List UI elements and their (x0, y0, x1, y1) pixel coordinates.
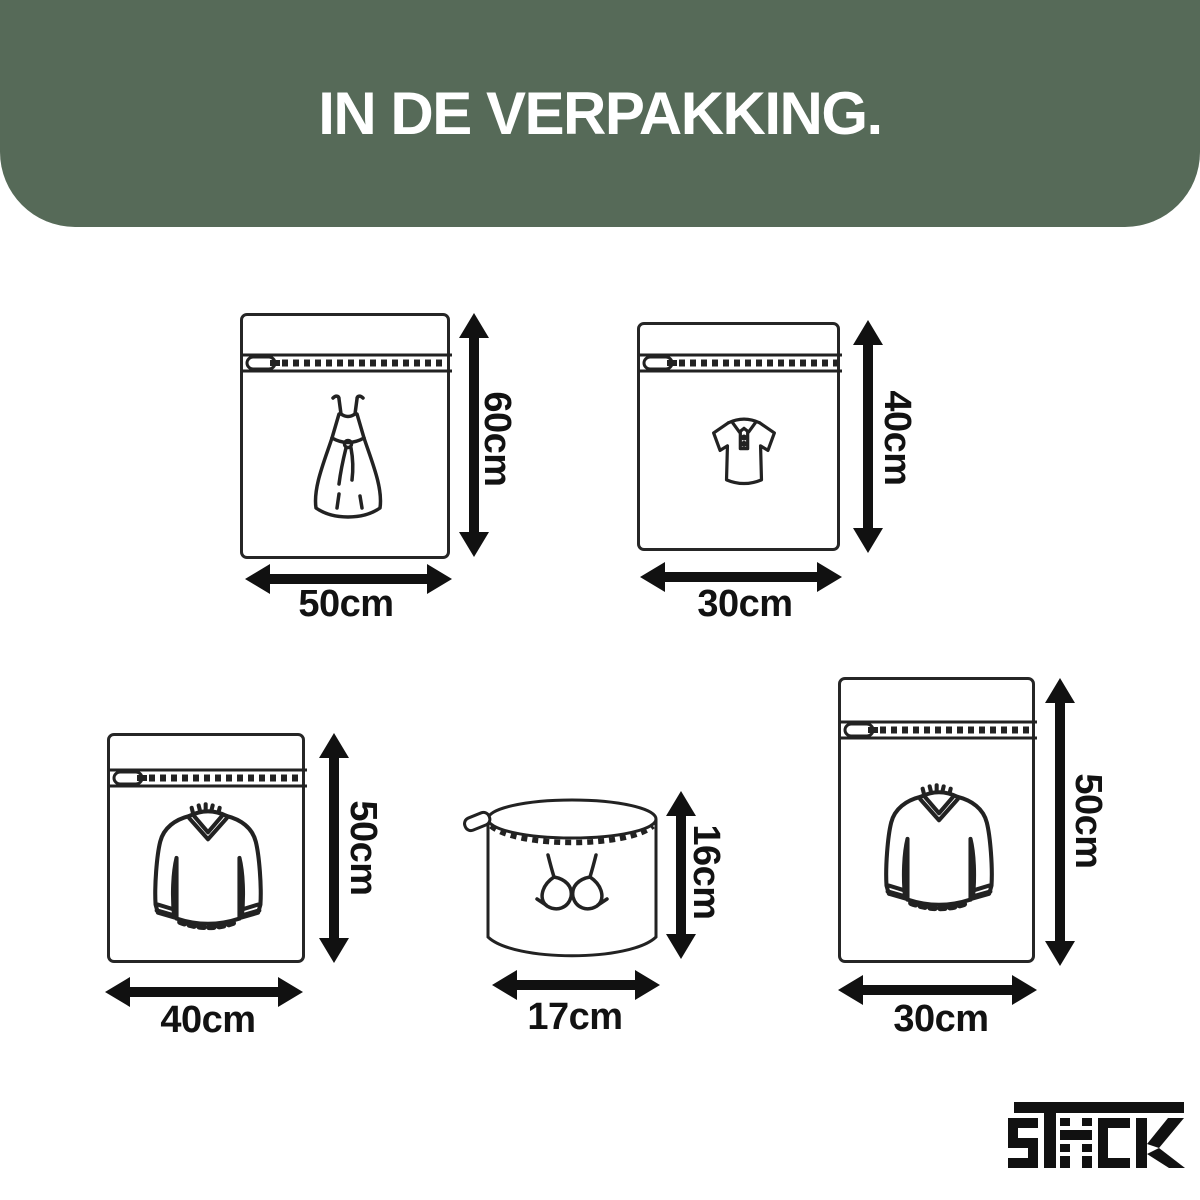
zipper (109, 768, 307, 788)
sweater-icon (138, 802, 278, 936)
stack-logo-mark (1008, 1102, 1186, 1170)
height-label: 40cm (878, 390, 916, 485)
stack-logo: STACK (1008, 1102, 1186, 1170)
zipper (242, 353, 452, 373)
header-banner: IN DE VERPAKKING. (0, 0, 1200, 227)
width-label: 50cm (298, 585, 393, 623)
laundry-bag-polo (637, 322, 840, 551)
height-label: 50cm (344, 800, 382, 895)
laundry-bag-sweater (107, 733, 305, 963)
polo-shirt-icon (698, 403, 790, 519)
bra-icon (524, 851, 620, 921)
laundry-bag-dress (240, 313, 450, 559)
height-label: 50cm (1069, 773, 1107, 868)
laundry-bag-sweater-tall (838, 677, 1035, 963)
zipper (840, 720, 1037, 740)
sweater-icon (869, 772, 1009, 928)
page-title: IN DE VERPAKKING. (318, 79, 881, 148)
dress-icon (303, 392, 393, 534)
height-label: 60cm (478, 391, 516, 486)
height-label: 16cm (687, 824, 725, 919)
width-label: 17cm (527, 998, 622, 1036)
width-label: 40cm (160, 1001, 255, 1039)
width-label: 30cm (893, 1000, 988, 1038)
zipper (639, 353, 842, 373)
packaging-infographic: IN DE VERPAKKING. (0, 0, 1200, 1200)
width-label: 30cm (697, 585, 792, 623)
